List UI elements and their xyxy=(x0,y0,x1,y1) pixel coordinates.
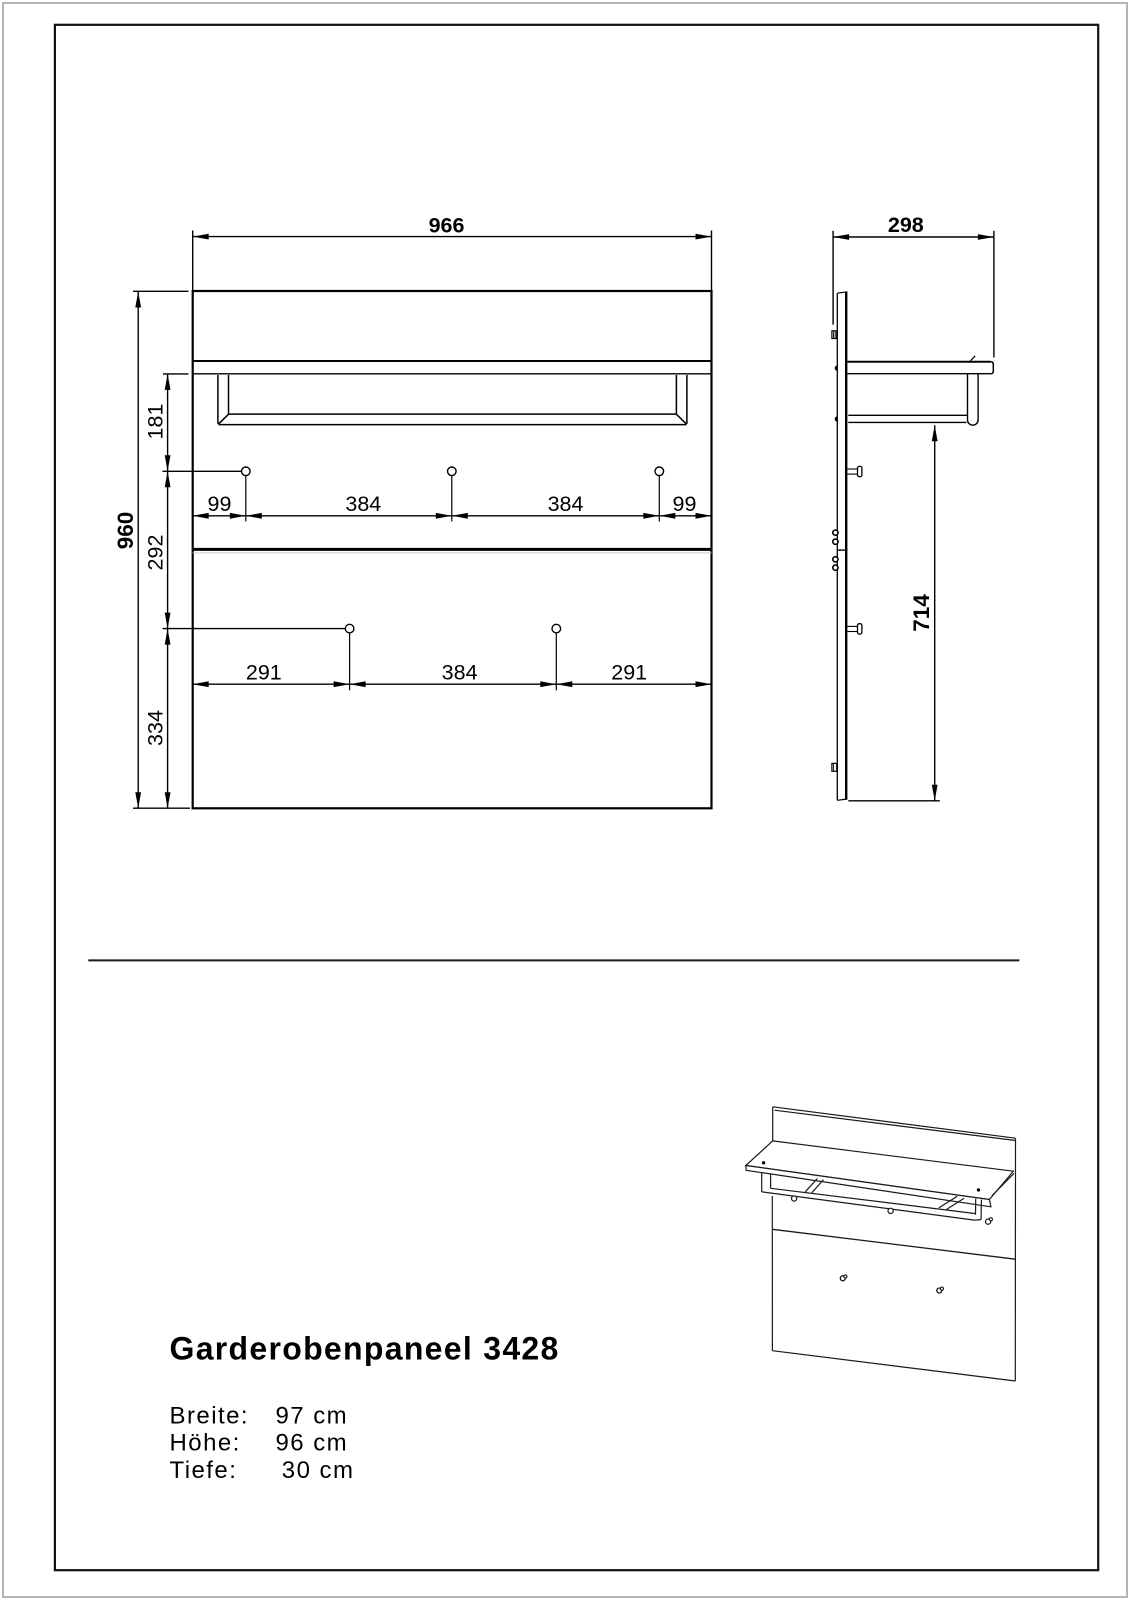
svg-text:334: 334 xyxy=(143,710,167,746)
svg-text:384: 384 xyxy=(442,660,478,684)
svg-text:97 cm: 97 cm xyxy=(276,1403,349,1430)
svg-text:Höhe:: Höhe: xyxy=(170,1430,241,1457)
svg-text:99: 99 xyxy=(208,492,232,516)
svg-text:960: 960 xyxy=(113,512,138,550)
svg-text:291: 291 xyxy=(246,660,282,684)
svg-text:30 cm: 30 cm xyxy=(282,1457,355,1484)
svg-text:Garderobenpaneel 3428: Garderobenpaneel 3428 xyxy=(170,1331,560,1367)
svg-text:291: 291 xyxy=(611,660,647,684)
svg-text:384: 384 xyxy=(345,492,381,516)
svg-text:181: 181 xyxy=(143,404,167,440)
svg-text:Breite:: Breite: xyxy=(170,1403,250,1430)
svg-text:298: 298 xyxy=(888,213,924,237)
svg-text:714: 714 xyxy=(909,594,934,632)
svg-text:99: 99 xyxy=(673,492,697,516)
svg-text:Tiefe:: Tiefe: xyxy=(170,1457,238,1484)
svg-text:292: 292 xyxy=(143,535,167,571)
svg-text:96 cm: 96 cm xyxy=(276,1430,349,1457)
svg-text:966: 966 xyxy=(429,214,465,238)
svg-text:384: 384 xyxy=(548,492,584,516)
